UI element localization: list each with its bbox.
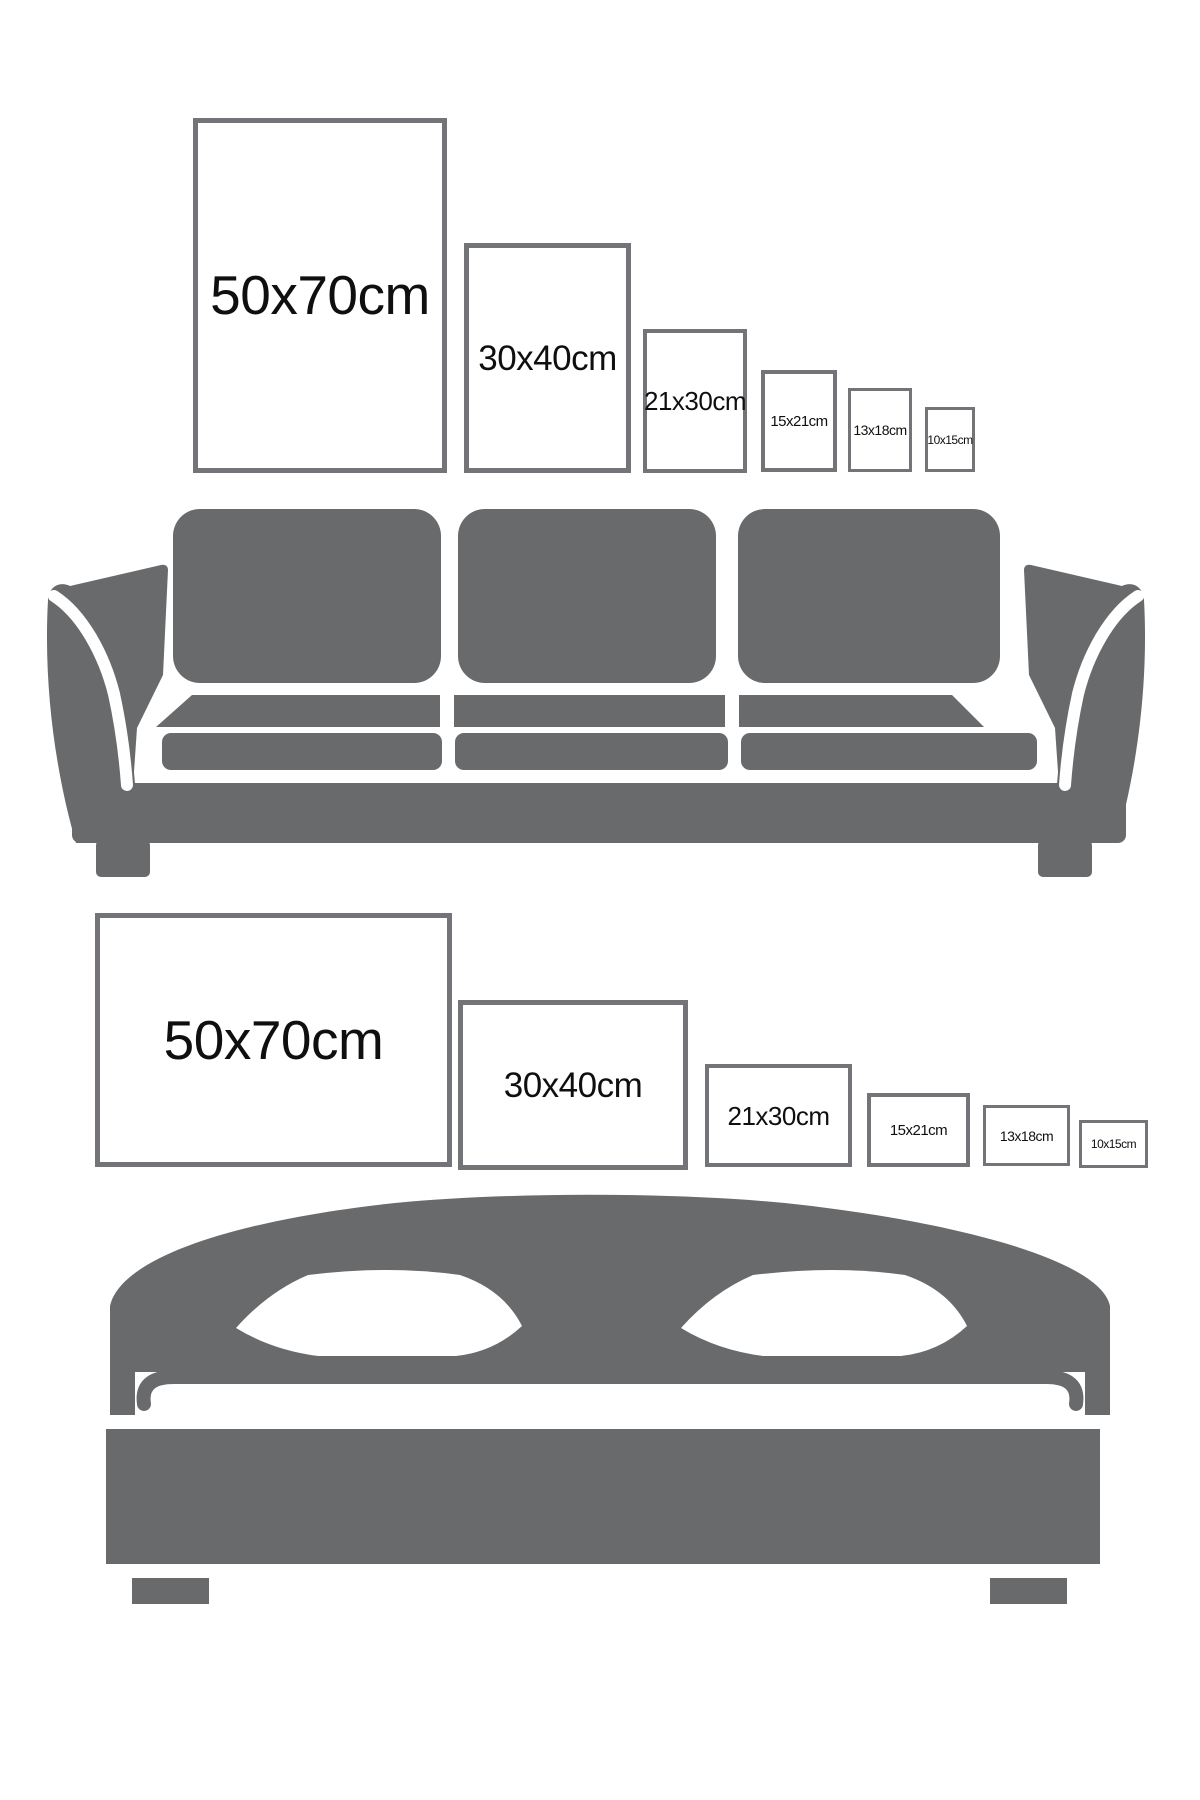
size-guide-infographic: 50x70cm30x40cm21x30cm15x21cm13x18cm10x15… <box>0 0 1200 1800</box>
sofa-icon <box>40 440 1160 880</box>
frame-size-label: 50x70cm <box>210 268 430 323</box>
frame-size-label: 13x18cm <box>1000 1129 1053 1143</box>
frame-size-label: 30x40cm <box>478 341 617 376</box>
frame-21x30-landscape: 21x30cm <box>705 1064 852 1167</box>
frame-size-label: 15x21cm <box>770 414 827 429</box>
frame-30x40-landscape: 30x40cm <box>458 1000 688 1170</box>
frame-13x18-landscape: 13x18cm <box>983 1105 1070 1166</box>
bed-icon <box>60 1180 1120 1610</box>
frame-30x40-portrait: 30x40cm <box>464 243 631 473</box>
frame-size-label: 15x21cm <box>890 1123 947 1138</box>
frame-50x70-landscape: 50x70cm <box>95 913 452 1167</box>
frame-50x70-portrait: 50x70cm <box>193 118 447 473</box>
frame-size-label: 13x18cm <box>853 423 906 437</box>
frame-15x21-landscape: 15x21cm <box>867 1093 970 1167</box>
frame-size-label: 21x30cm <box>728 1103 830 1129</box>
frame-size-label: 30x40cm <box>504 1068 643 1103</box>
frame-10x15-landscape: 10x15cm <box>1079 1120 1148 1168</box>
frame-size-label: 10x15cm <box>1091 1138 1136 1150</box>
frame-size-label: 21x30cm <box>644 388 746 414</box>
frame-size-label: 50x70cm <box>164 1013 384 1068</box>
